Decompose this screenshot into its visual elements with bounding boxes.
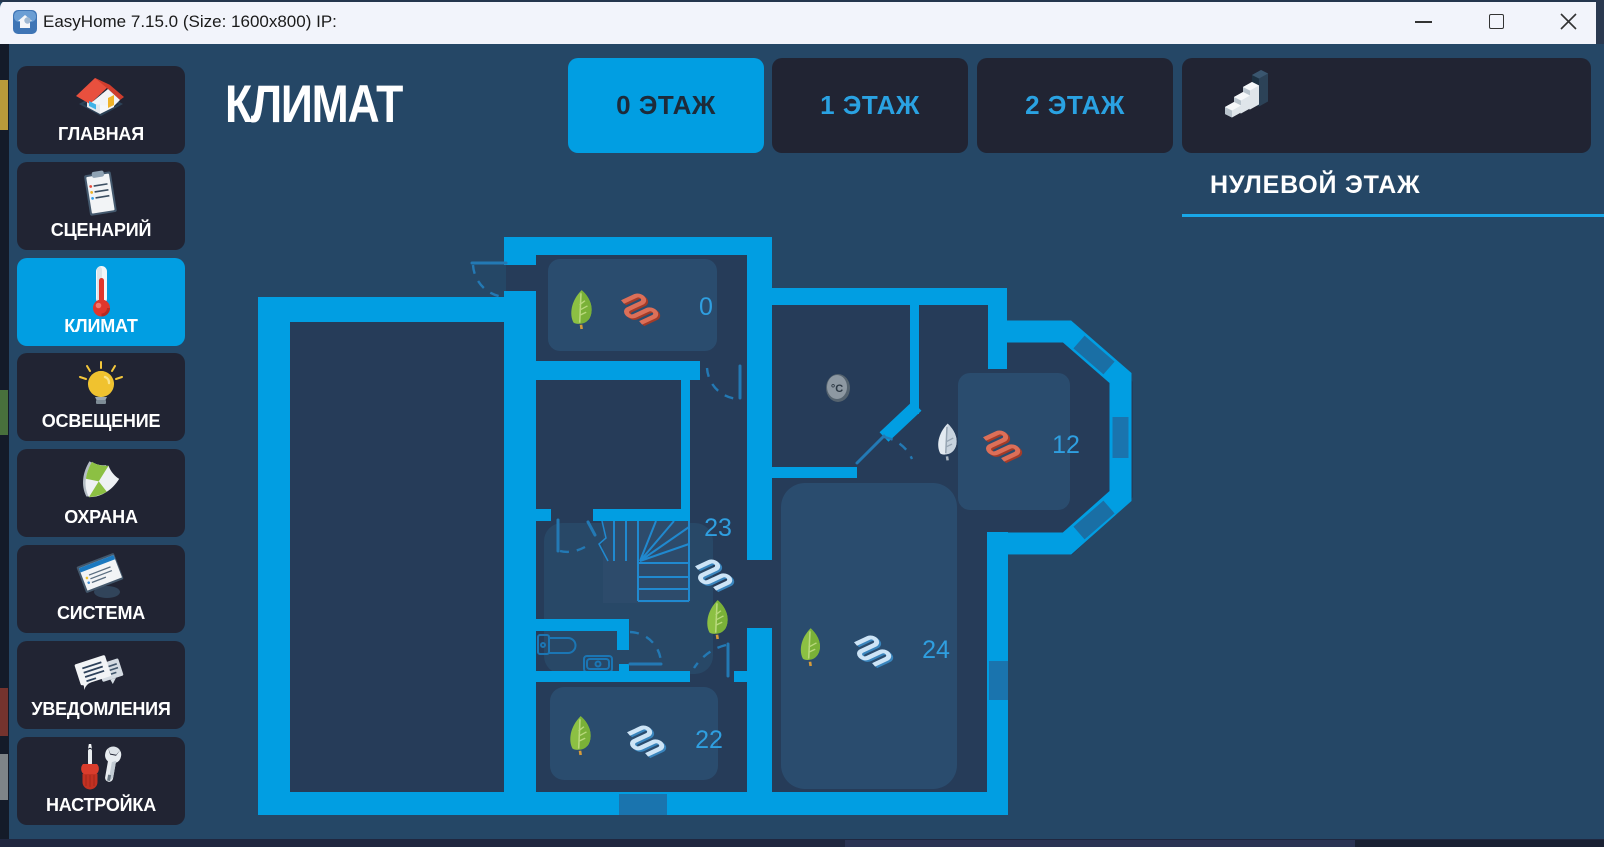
svg-text:12: 12 — [1052, 431, 1080, 459]
svg-text:22: 22 — [695, 726, 723, 754]
svg-text:0: 0 — [699, 293, 713, 321]
svg-text:24: 24 — [922, 636, 950, 664]
svg-text:23: 23 — [704, 514, 732, 542]
svg-text:°C: °C — [831, 383, 843, 395]
